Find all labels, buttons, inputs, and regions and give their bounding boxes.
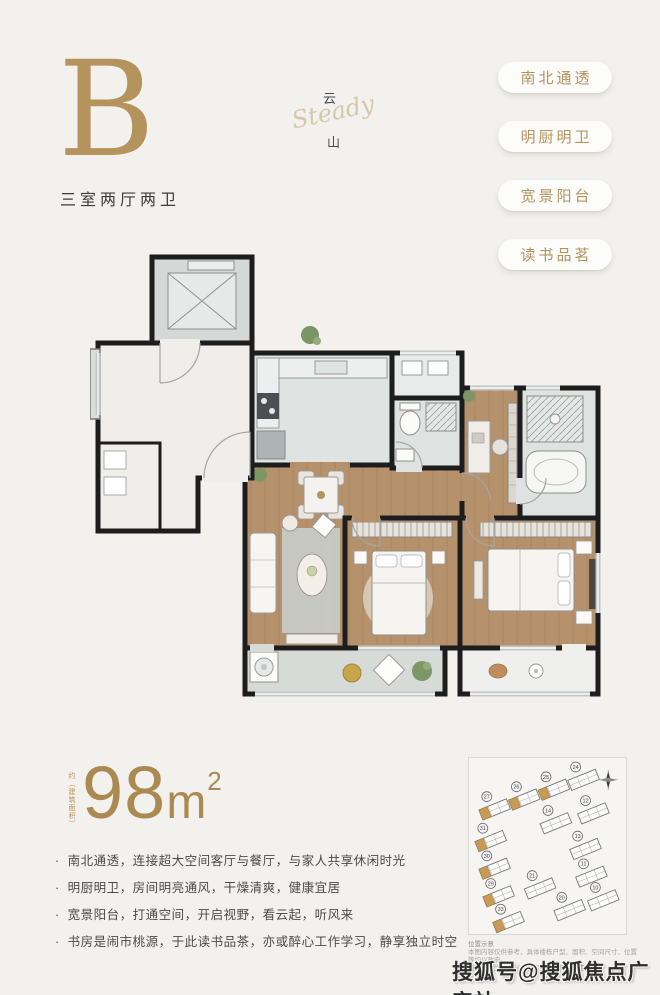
svg-text:29: 29	[488, 881, 494, 887]
svg-text:13: 13	[575, 834, 581, 840]
svg-text:10: 10	[592, 885, 598, 891]
shower	[426, 403, 456, 431]
bookshelf	[508, 403, 517, 503]
badge: 南北通透	[498, 62, 612, 93]
area-note: 约（建筑面积）	[66, 772, 76, 842]
svg-text:21: 21	[529, 874, 535, 880]
svg-text:25: 25	[543, 775, 549, 781]
plant-icon	[253, 468, 267, 482]
siteplan-card: 272625243114123013292111332010	[468, 757, 627, 935]
gold-plate	[343, 664, 361, 682]
stove	[257, 393, 279, 419]
siteplan-building: 14	[540, 806, 572, 834]
feature-list: ·南北通透，连接超大空间客厅与餐厅，与家人共享休闲时光·明厨明卫，房间明亮通风，…	[55, 848, 458, 956]
unit-type-label: 三室两厅两卫	[60, 186, 180, 210]
kitchen	[252, 353, 392, 469]
master-bedroom	[460, 518, 598, 648]
bedroom-1	[345, 518, 460, 648]
bench	[474, 561, 483, 599]
siteplan-building: 25	[538, 772, 570, 800]
siteplan-building: 11	[576, 859, 608, 887]
nightstand	[354, 551, 367, 564]
elevator-core	[152, 257, 252, 343]
svg-text:24: 24	[573, 765, 579, 771]
compass-icon	[598, 770, 618, 790]
wardrobe	[480, 522, 592, 537]
bathtub	[526, 451, 586, 493]
area-value: 98m2	[82, 756, 223, 830]
badge: 宽景阳台	[498, 180, 612, 211]
balcony-master	[460, 648, 598, 694]
unit-letter: B	[58, 44, 155, 176]
nightstand	[432, 551, 445, 564]
siteplan-building: 24	[568, 762, 600, 790]
washbasin	[396, 449, 414, 461]
balcony-living	[245, 648, 445, 694]
study-room	[462, 388, 520, 518]
siteplan-map: 272625243114123013292111332010	[469, 758, 626, 934]
sofa	[250, 533, 276, 613]
tv-cabinet	[589, 559, 596, 609]
feature-item: ·南北通透，连接超大空间客厅与餐厅，与家人共享休闲时光	[55, 848, 458, 875]
svg-text:11: 11	[581, 862, 587, 868]
siteplan-building: 20	[554, 892, 586, 920]
siteplan-building: 26	[509, 782, 541, 810]
plant-icon	[463, 390, 475, 402]
kitchen-sink	[315, 361, 347, 374]
nightstand	[576, 611, 592, 624]
siteplan-caption-title: 位置示意	[468, 940, 643, 949]
siteplan-building: 12	[578, 796, 610, 824]
siteplan-building: 21	[524, 871, 556, 899]
fridge	[257, 431, 285, 459]
siteplan-building: 10	[588, 883, 620, 911]
toilet	[400, 411, 420, 435]
floorplan	[90, 253, 610, 715]
svg-text:33: 33	[498, 907, 504, 913]
siteplan-building: 29	[483, 879, 515, 907]
watermark: 搜狐号@搜狐焦点广安站	[452, 956, 660, 995]
siteplan-building: 30	[479, 851, 511, 879]
feature-item: ·明厨明卫，房间明亮通风，干燥清爽，健康宜居	[55, 875, 458, 902]
siteplan-building: 13	[570, 831, 602, 859]
side-table	[282, 515, 298, 531]
decor	[489, 664, 507, 678]
desk-chair	[492, 439, 508, 455]
svg-text:12: 12	[583, 799, 589, 805]
utility-room	[392, 353, 462, 398]
bathroom-1	[392, 398, 462, 468]
svg-text:31: 31	[480, 826, 486, 832]
siteplan-building: 27	[479, 792, 511, 820]
svg-text:20: 20	[559, 895, 565, 901]
nightstand	[576, 541, 592, 554]
wardrobe	[352, 522, 452, 537]
tv-console	[286, 634, 338, 644]
feature-item: ·书房是闹市桃源，于此读书品茶，亦或醉心工作学习，静享独立时空	[55, 929, 458, 956]
feature-item: ·宽景阳台，打通空间，开启视野，看云起，听风来	[55, 902, 458, 929]
badge: 明厨明卫	[498, 121, 612, 152]
dining-table-set	[298, 471, 344, 519]
poster-root: B 三室两厅两卫 云 Steady 山 南北通透明厨明卫宽景阳台读书品茗	[0, 0, 660, 995]
siteplan-building: 33	[493, 904, 525, 932]
bathroom-2	[520, 388, 598, 518]
svg-text:14: 14	[545, 808, 551, 814]
desk	[468, 421, 490, 473]
feature-badges: 南北通透明厨明卫宽景阳台读书品茗	[498, 62, 612, 270]
svg-text:27: 27	[484, 795, 490, 801]
siteplan-building: 31	[475, 823, 507, 851]
svg-text:26: 26	[513, 785, 519, 791]
svg-text:30: 30	[484, 854, 490, 860]
brand-logo-bottom: 山	[327, 132, 340, 151]
